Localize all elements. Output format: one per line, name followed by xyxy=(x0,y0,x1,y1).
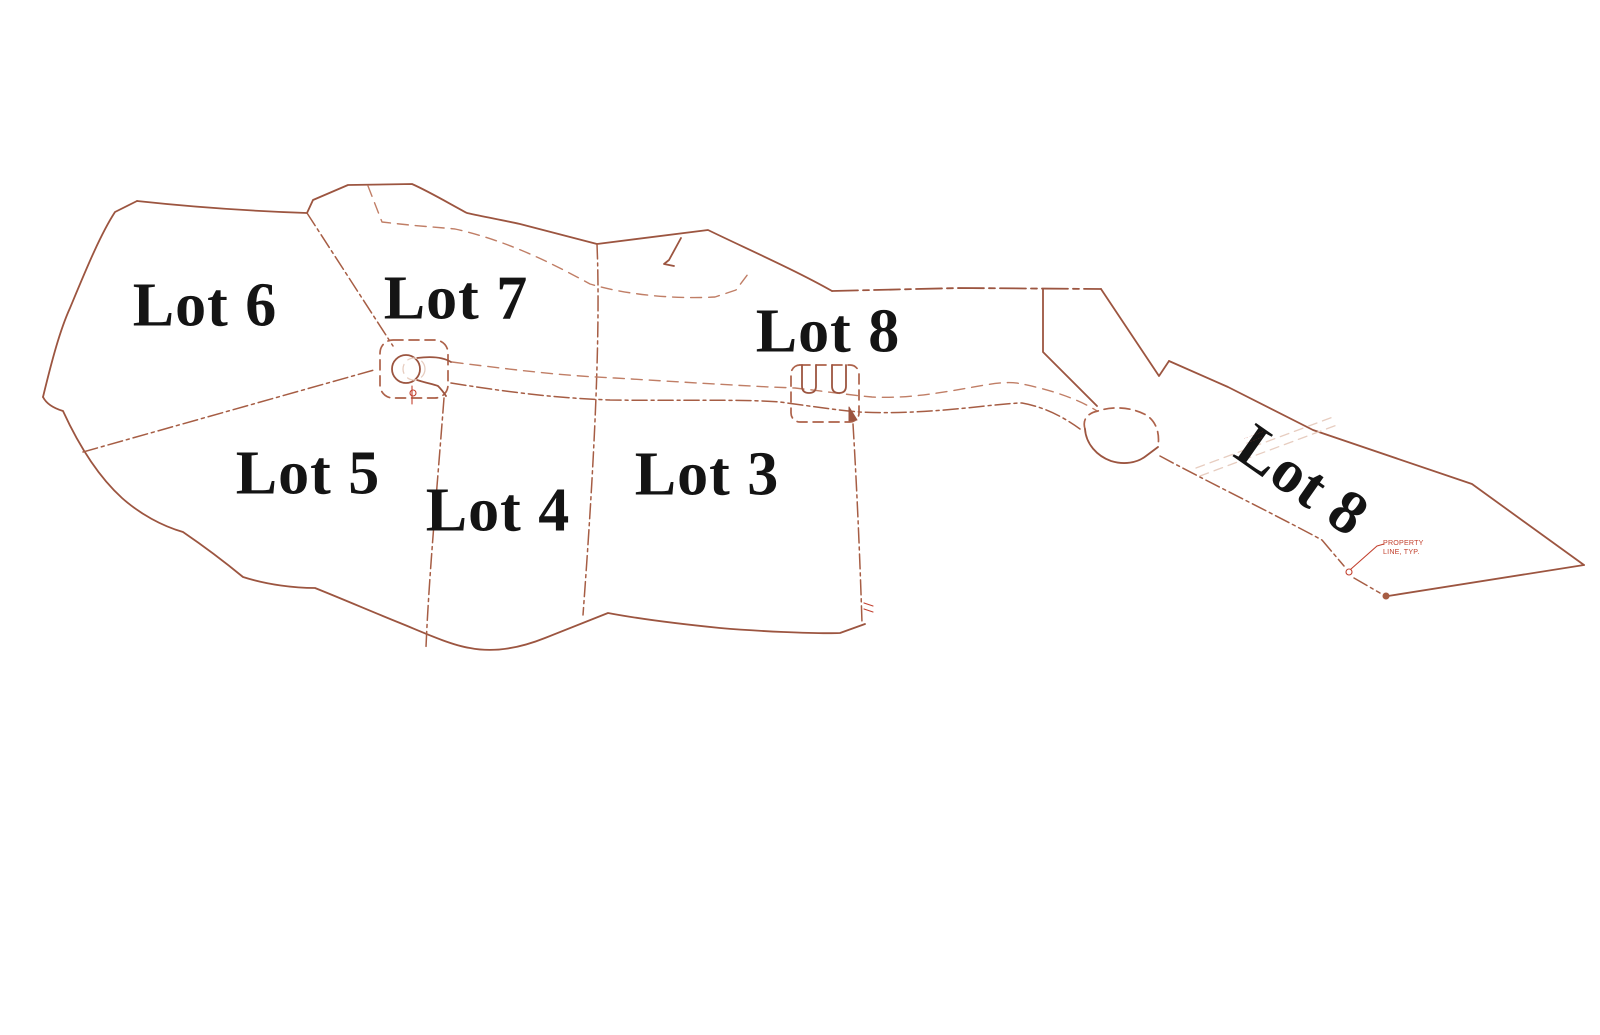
lot-divider-lines xyxy=(83,213,1380,647)
lot-7-label: Lot 7 xyxy=(384,264,529,335)
lot-5-label: Lot 5 xyxy=(236,439,381,510)
property-line-note-line1: PROPERTY xyxy=(1383,538,1424,547)
lot-4-label: Lot 4 xyxy=(426,476,571,547)
lot-8-center-label: Lot 8 xyxy=(756,297,901,368)
property-line-note: PROPERTY LINE, TYP. xyxy=(1383,538,1424,556)
leader-line xyxy=(1351,544,1384,569)
plat-drawing: Lot 6 Lot 7 Lot 8 Lot 5 Lot 4 Lot 3 Lot … xyxy=(0,0,1600,1035)
monument-flag xyxy=(664,238,681,266)
lot-6-label: Lot 6 xyxy=(133,271,278,342)
corner-tick-marks xyxy=(864,603,873,612)
property-line-note-line2: LINE, TYP. xyxy=(1383,547,1424,556)
property-corner-circle xyxy=(1346,569,1352,575)
outer-boundary xyxy=(43,184,1584,650)
hammerhead-turnaround xyxy=(791,365,859,422)
lot-3-label: Lot 3 xyxy=(635,440,780,511)
culdesac-west xyxy=(380,340,451,398)
turnaround-east xyxy=(1084,408,1158,463)
